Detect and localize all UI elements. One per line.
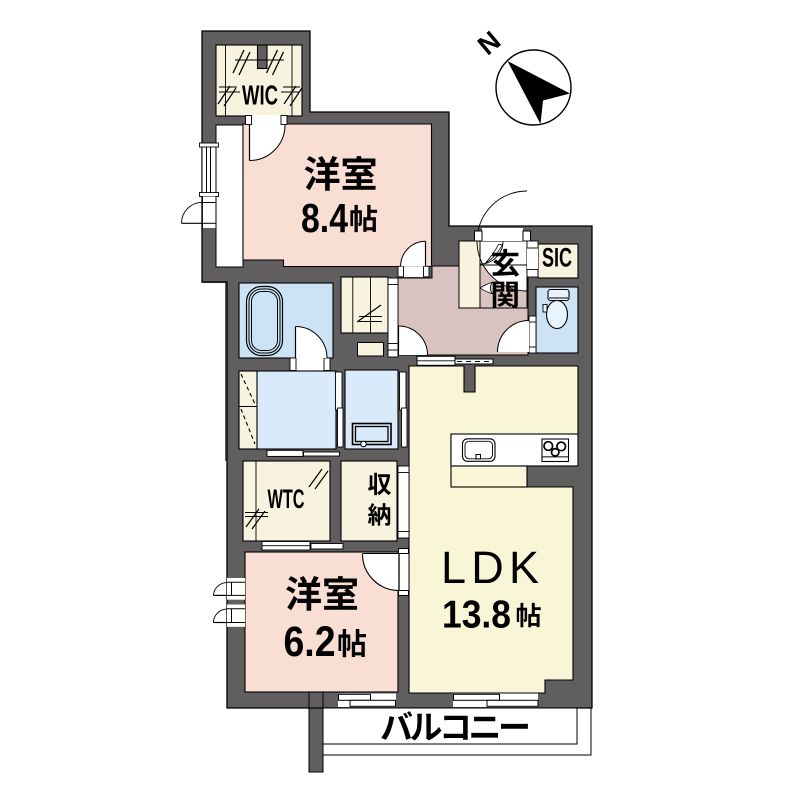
svg-text:6.2: 6.2: [284, 618, 336, 666]
svg-text:N: N: [472, 25, 506, 61]
svg-text:WIC: WIC: [242, 80, 278, 111]
svg-text:WTC: WTC: [268, 484, 305, 514]
svg-text:LDK: LDK: [441, 542, 539, 593]
svg-text:13.8: 13.8: [442, 594, 511, 637]
svg-text:SIC: SIC: [542, 243, 572, 273]
svg-text:8.4: 8.4: [301, 195, 348, 241]
